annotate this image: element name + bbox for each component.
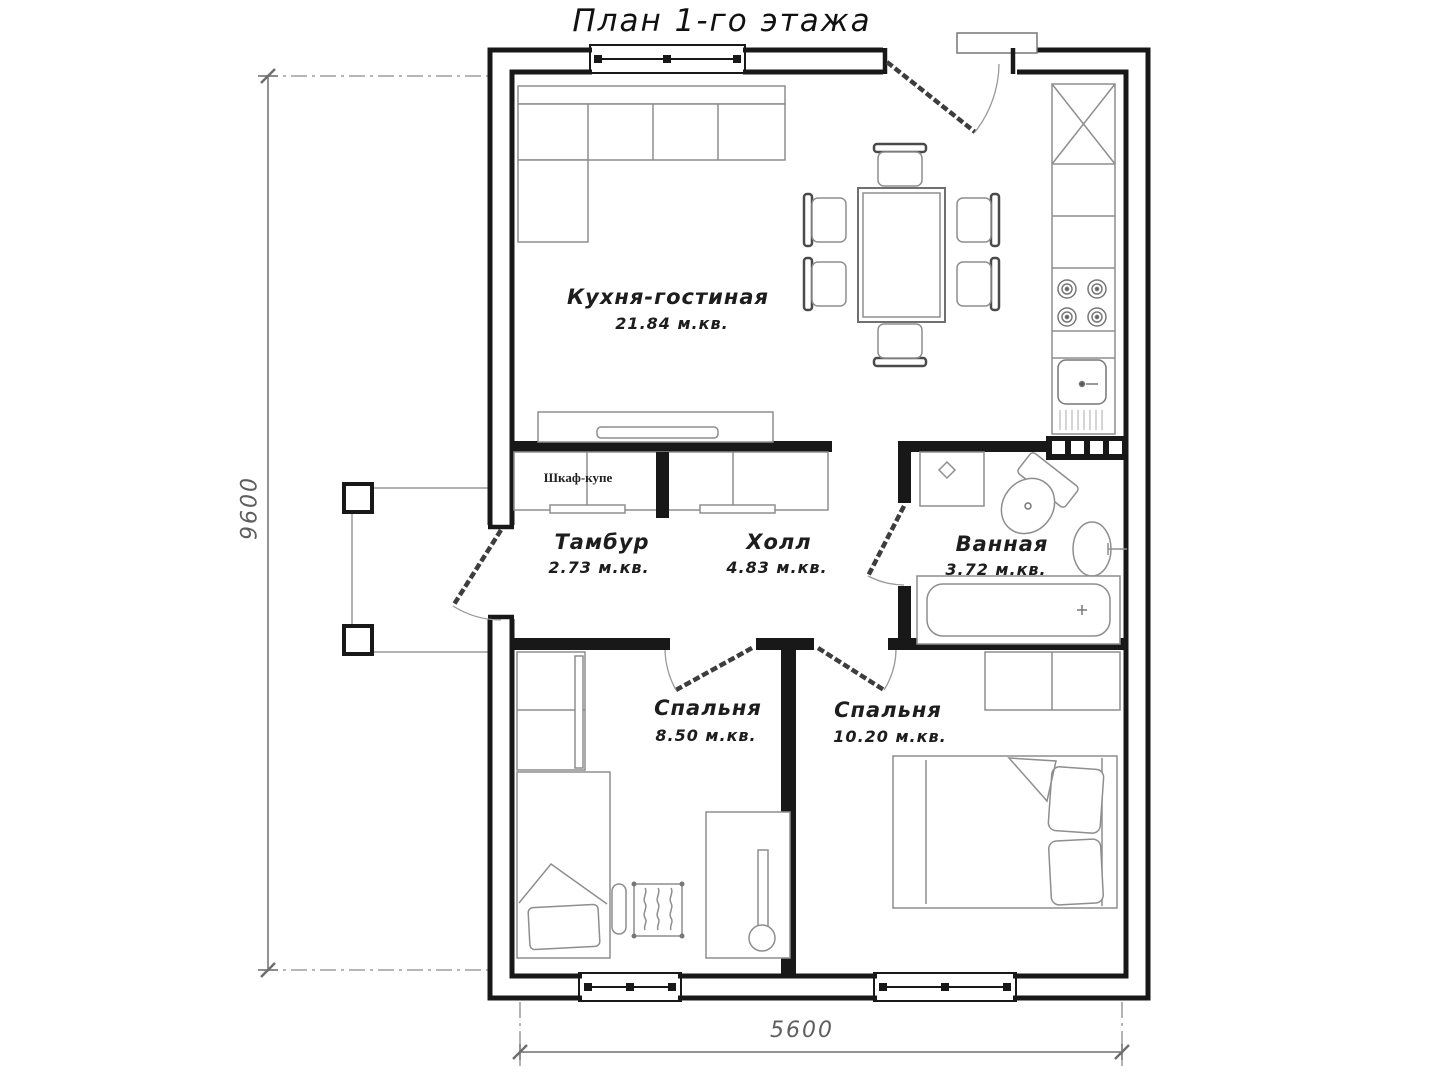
room-area-hall: 4.83 м.кв. — [726, 558, 827, 577]
chair — [991, 258, 999, 310]
page-title: План 1-го этажа — [572, 3, 871, 39]
duct-block — [1046, 436, 1127, 460]
chair — [874, 144, 926, 152]
bathtub — [917, 576, 1120, 644]
bathroom-door — [868, 506, 904, 585]
chair — [991, 194, 999, 246]
kitchen-counter — [1052, 84, 1115, 434]
hall-wardrobe-label: Шкаф-купе — [544, 470, 612, 486]
toilet — [990, 451, 1079, 544]
single-bed — [517, 772, 610, 958]
bedroom-1-wardrobe — [517, 652, 585, 770]
chimney-box — [957, 33, 1037, 53]
tv-cabinet — [538, 412, 773, 442]
room-label-bath: Ванная — [956, 532, 1049, 556]
room-area-bath: 3.72 м.кв. — [945, 560, 1046, 579]
floor-plan-drawing — [0, 0, 1440, 1080]
room-area-bedroom-1: 8.50 м.кв. — [655, 726, 756, 745]
chair — [804, 258, 812, 310]
room-label-bedroom-2: Спальня — [834, 698, 942, 722]
bathroom-sink — [1073, 522, 1127, 576]
horizontal-dimension-line — [513, 1044, 1129, 1060]
room-label-kitchen: Кухня-гостиная — [567, 285, 769, 309]
bedroom-2-wardrobe — [985, 652, 1120, 710]
dining-table-set — [804, 144, 999, 366]
chair — [874, 358, 926, 366]
entrance-porch — [344, 484, 490, 654]
room-label-bedroom-1: Спальня — [654, 696, 762, 720]
room-label-hall: Холл — [746, 530, 811, 554]
porch-column — [344, 484, 372, 512]
room-area-tambur: 2.73 м.кв. — [548, 558, 649, 577]
corner-sofa — [518, 86, 785, 242]
bedroom-2-door — [818, 648, 896, 690]
chair — [804, 194, 812, 246]
dimension-vertical-value: 9600 — [238, 476, 263, 540]
bedroom-1-door — [665, 648, 752, 690]
floor-plan-page: План 1-го этажа Кухня-гостиная 21.84 м.к… — [0, 0, 1440, 1080]
room-area-bedroom-2: 10.20 м.кв. — [833, 727, 946, 746]
dimension-horizontal-value: 5600 — [770, 1018, 834, 1043]
double-bed — [893, 756, 1117, 908]
washing-machine — [920, 452, 984, 506]
porch-column — [344, 626, 372, 654]
office-chair — [612, 882, 685, 939]
room-label-tambur: Тамбур — [554, 530, 649, 554]
room-area-kitchen: 21.84 м.кв. — [615, 314, 728, 333]
desk — [706, 812, 790, 958]
